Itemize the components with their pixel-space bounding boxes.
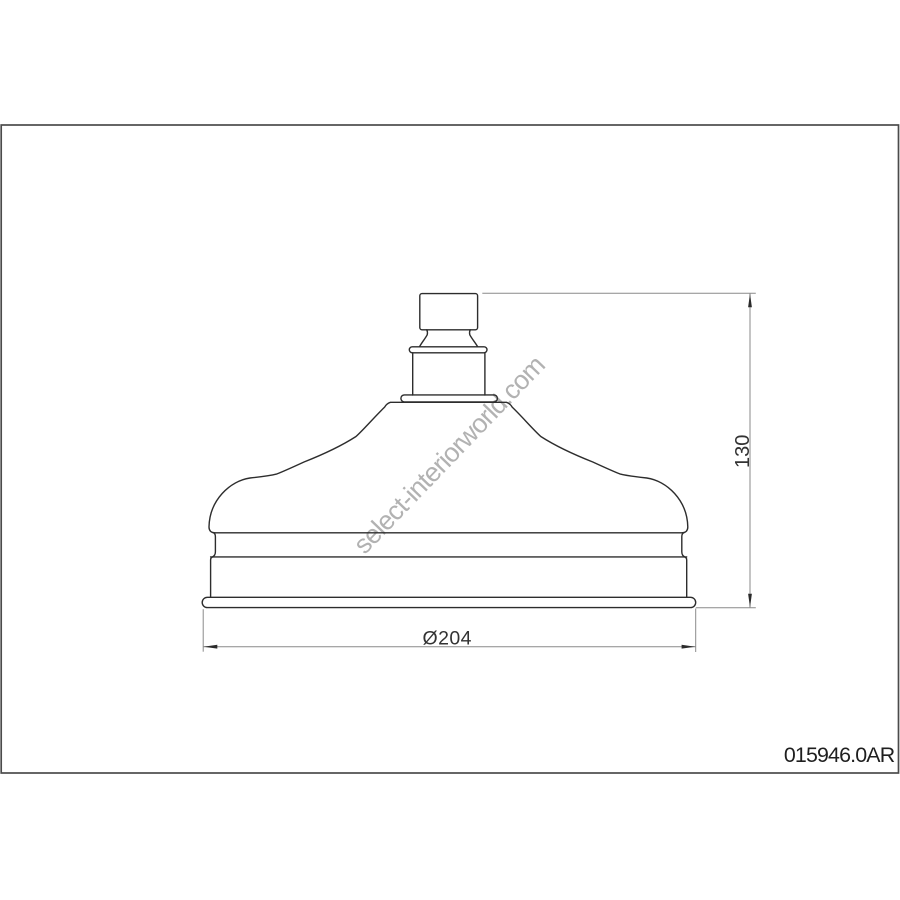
svg-text:015946.0AR: 015946.0AR [784,743,895,767]
svg-text:Ø204: Ø204 [423,628,472,650]
svg-text:130: 130 [732,435,754,468]
